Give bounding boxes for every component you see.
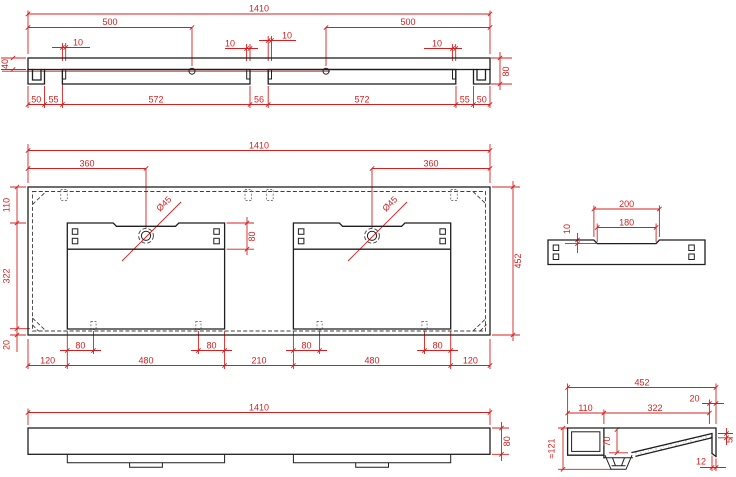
dim-plan-seg2: 480 (138, 355, 153, 365)
dim-section-back: 110 (578, 403, 592, 413)
rail-body-right (268, 70, 456, 85)
dim-section-drop: 70 (602, 436, 612, 446)
dim-rail-seg3: 572 (148, 94, 163, 104)
plan-bowl-left (67, 223, 224, 329)
plan-corner-chamfers (33, 192, 487, 332)
view-front: 1410 80 (26, 402, 512, 467)
detail-dimension-lines (565, 206, 659, 254)
technical-drawing-canvas: 1410 500 500 10 10 10 10 40 80 50 55 572… (0, 0, 736, 477)
dim-plan-tab2: 80 (206, 340, 216, 350)
front-dimension-ticks (26, 410, 504, 456)
view-plan: 1410 360 360 Ø45 Ø45 80 110 322 20 452 8… (2, 140, 524, 369)
dim-rail-seg2: 55 (48, 94, 58, 104)
dim-section-height: ≈121 (547, 439, 557, 459)
view-section: 452 110 322 20 ≈121 70 5 12 (547, 377, 735, 471)
dim-rail-height-left: 40 (0, 59, 10, 69)
plan-tap-hole-left-inner (141, 231, 150, 240)
dim-plan-tab3: 80 (301, 340, 311, 350)
front-slab (28, 428, 490, 454)
rail-end-hooks (28, 70, 490, 85)
dim-rail-seg6: 55 (460, 94, 470, 104)
drawing-page: 1410 500 500 10 10 10 10 40 80 50 55 572… (0, 0, 736, 477)
plan-overflow-slots (72, 229, 445, 244)
dim-plan-tap-dia-left: Ø45 (154, 194, 173, 213)
plan-wall-tabs (61, 190, 458, 330)
plan-tap-hole-left (139, 228, 154, 243)
rail-bar (28, 58, 490, 70)
dim-front-overall: 1410 (249, 402, 269, 412)
section-dimension-lines (558, 384, 733, 472)
dim-rail-pin3: 10 (282, 31, 292, 41)
dim-rail-hole-right: 500 (400, 17, 415, 27)
dim-plan-overall-depth: 452 (513, 253, 523, 268)
dim-plan-depth: 322 (2, 268, 12, 283)
dim-rail-seg4: 56 (254, 94, 264, 104)
dim-plan-seg3: 210 (251, 355, 266, 365)
dim-front-height: 80 (502, 436, 512, 446)
dim-detail-depth: 10 (562, 224, 572, 234)
dim-detail-inner: 180 (619, 217, 634, 227)
dim-section-mid: 322 (647, 403, 662, 413)
section-drain (604, 455, 633, 469)
dim-plan-tab1: 80 (75, 340, 85, 350)
dim-section-overall: 452 (634, 377, 649, 387)
plan-tap-hole-right-inner (367, 231, 376, 240)
dim-rail-height-right: 80 (501, 66, 511, 76)
rail-dimension-ticks (11, 12, 502, 107)
dim-plan-tap-left: 360 (79, 158, 94, 168)
front-bowl-undersides (67, 454, 450, 467)
detail-slots (553, 245, 694, 260)
front-dimension-lines (28, 409, 509, 462)
plan-outline (28, 187, 490, 335)
dim-plan-tab4: 80 (433, 340, 443, 350)
dim-detail-outer: 200 (619, 199, 634, 209)
dim-rail-seg5: 572 (354, 94, 369, 104)
dim-plan-seg4: 480 (364, 355, 379, 365)
dim-rail-seg7: 50 (477, 94, 487, 104)
dim-plan-tap-right: 360 (423, 158, 438, 168)
dim-section-rim: 5 (725, 438, 735, 443)
dim-section-edge: 12 (696, 457, 706, 467)
dim-plan-strip: 80 (247, 231, 257, 241)
view-notch-detail: 200 180 10 (548, 199, 705, 265)
dim-rail-seg1: 50 (31, 94, 41, 104)
dim-plan-back: 110 (2, 198, 12, 212)
dim-plan-seg1: 120 (40, 355, 55, 365)
dim-rail-pin4: 10 (432, 39, 442, 49)
dim-section-lip: 20 (689, 393, 699, 403)
dim-rail-overall: 1410 (249, 4, 269, 14)
plan-bowl-right (293, 223, 450, 329)
section-rail-cavity (572, 432, 600, 452)
dim-rail-hole-left: 500 (102, 17, 117, 27)
rail-body-left (62, 70, 250, 85)
dim-plan-tap-dia-right: Ø45 (380, 194, 399, 213)
plan-hidden-edge (33, 192, 486, 332)
dim-plan-seg5: 120 (463, 355, 478, 365)
dim-plan-overall: 1410 (249, 140, 269, 150)
dim-rail-pin1: 10 (73, 38, 83, 48)
plan-tap-hole-right (365, 228, 380, 243)
dim-plan-front: 20 (2, 340, 12, 350)
view-mounting-rail: 1410 500 500 10 10 10 10 40 80 50 55 572… (0, 4, 512, 109)
dim-rail-pin2: 10 (225, 39, 235, 49)
